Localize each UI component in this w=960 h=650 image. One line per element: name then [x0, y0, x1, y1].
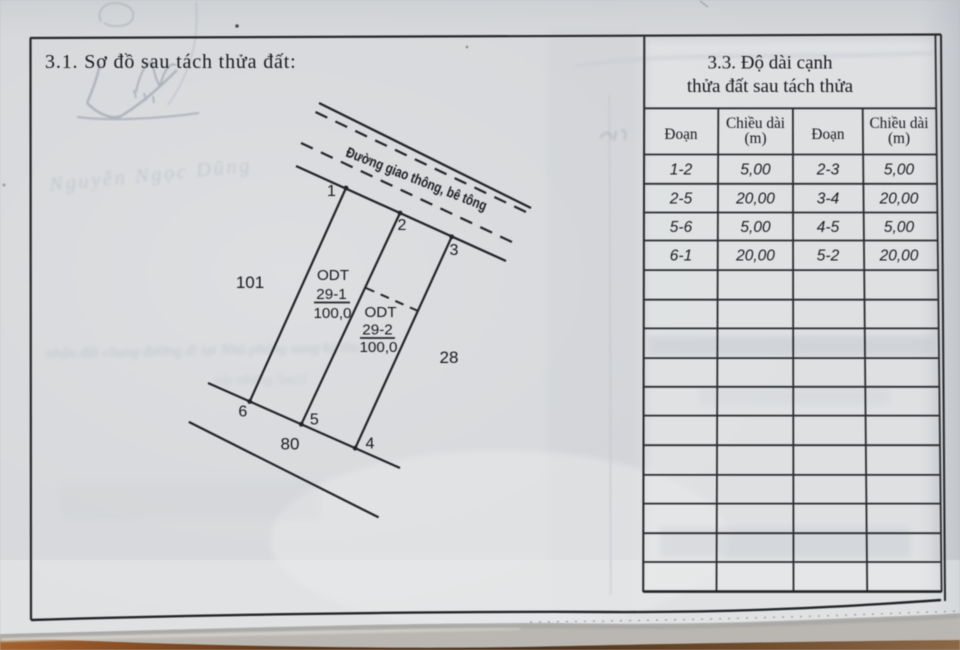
svg-text:(m): (m) — [744, 130, 766, 147]
svg-text:5,00: 5,00 — [740, 219, 771, 236]
svg-text:20,00: 20,00 — [879, 191, 919, 208]
svg-text:1-2: 1-2 — [670, 162, 693, 179]
svg-text:2: 2 — [398, 217, 407, 234]
svg-text:101: 101 — [236, 273, 264, 292]
svg-text:1: 1 — [327, 183, 336, 200]
svg-text:2-5: 2-5 — [669, 191, 693, 208]
svg-text:29-2: 29-2 — [362, 322, 392, 339]
svg-text:Đoạn: Đoạn — [811, 126, 844, 143]
svg-text:20,00: 20,00 — [735, 191, 775, 208]
svg-text:100,0: 100,0 — [313, 305, 351, 322]
svg-text:thửa đất sau tách thửa: thửa đất sau tách thửa — [687, 76, 854, 97]
svg-text:3-4: 3-4 — [817, 191, 840, 208]
svg-text:ODT: ODT — [364, 304, 396, 321]
svg-text:4-5: 4-5 — [817, 219, 840, 236]
svg-text:80: 80 — [281, 435, 300, 454]
svg-text:3.3. Độ dài cạnh: 3.3. Độ dài cạnh — [707, 53, 833, 74]
svg-text:5-2: 5-2 — [817, 248, 840, 265]
svg-text:3: 3 — [450, 242, 459, 259]
svg-text:3.1. Sơ đồ sau tách thửa đất:: 3.1. Sơ đồ sau tách thửa đất: — [45, 51, 297, 73]
svg-text:5,00: 5,00 — [884, 162, 915, 179]
svg-text:20,00: 20,00 — [879, 248, 919, 265]
svg-text:6-1: 6-1 — [670, 248, 692, 265]
svg-text:6: 6 — [238, 404, 247, 421]
svg-text:4: 4 — [366, 436, 375, 453]
svg-text:2-3: 2-3 — [816, 162, 840, 179]
svg-text:Đoạn: Đoạn — [664, 126, 697, 143]
svg-text:100,0: 100,0 — [359, 339, 397, 356]
svg-text:20,00: 20,00 — [735, 248, 775, 265]
svg-text:(m): (m) — [888, 130, 910, 147]
svg-text:5,00: 5,00 — [884, 219, 915, 236]
svg-text:ODT: ODT — [317, 267, 349, 284]
svg-text:28: 28 — [440, 348, 459, 367]
svg-text:5-6: 5-6 — [670, 219, 693, 236]
svg-text:5: 5 — [310, 411, 319, 428]
svg-text:5,00: 5,00 — [740, 162, 771, 179]
svg-text:29-1: 29-1 — [316, 286, 346, 303]
